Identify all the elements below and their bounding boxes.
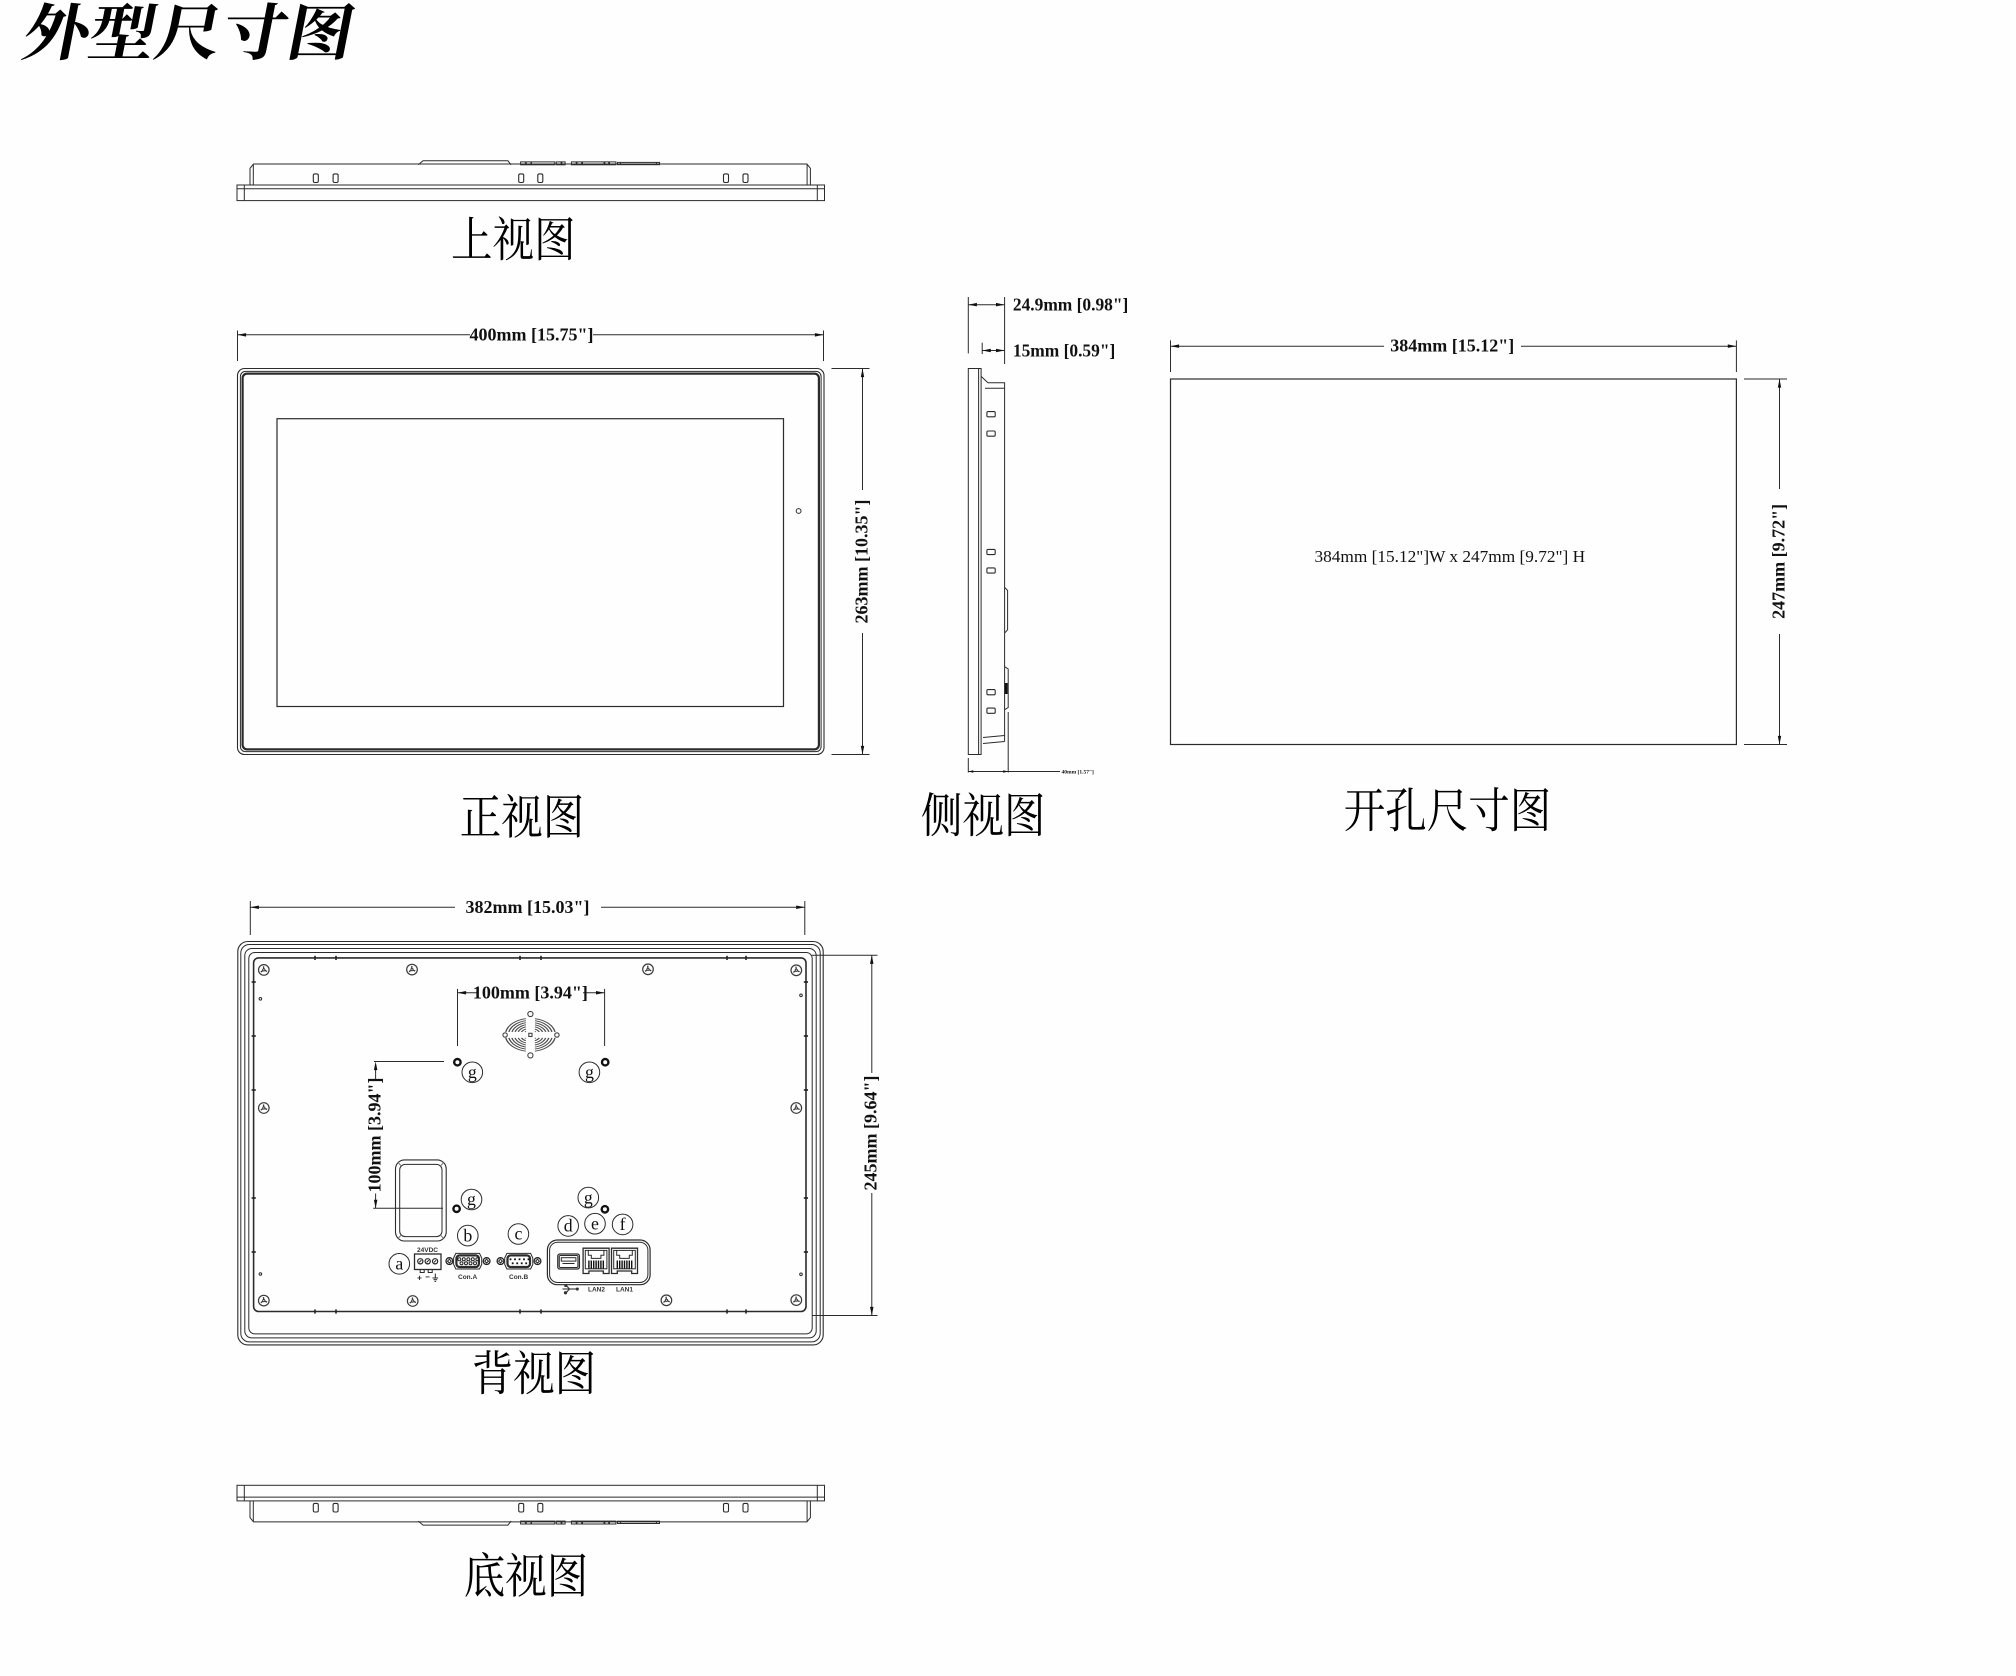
svg-text:LAN2: LAN2 [588, 1287, 605, 1294]
svg-text:+: + [417, 1274, 422, 1283]
svg-text:263mm [10.35"]: 263mm [10.35"] [851, 500, 871, 624]
svg-text:e: e [591, 1213, 599, 1233]
svg-text:100mm [3.94"]: 100mm [3.94"] [473, 982, 588, 1002]
svg-text:382mm [15.03"]: 382mm [15.03"] [466, 897, 590, 917]
svg-text:247mm [9.72"]: 247mm [9.72"] [1768, 504, 1788, 619]
svg-text:f: f [620, 1214, 626, 1234]
svg-text:−: − [425, 1273, 430, 1282]
svg-text:a: a [395, 1253, 403, 1273]
svg-text:384mm [15.12"]: 384mm [15.12"] [1390, 336, 1514, 356]
svg-text:LAN1: LAN1 [616, 1287, 633, 1294]
svg-text:Con.A: Con.A [458, 1274, 477, 1281]
svg-text:c: c [514, 1224, 522, 1244]
svg-text:24VDC: 24VDC [417, 1247, 438, 1254]
svg-text:24.9mm [0.98"]: 24.9mm [0.98"] [1013, 295, 1128, 315]
svg-text:384mm [15.12"]W x 247mm [9.72": 384mm [15.12"]W x 247mm [9.72"] H [1315, 547, 1586, 566]
svg-text:245mm [9.64"]: 245mm [9.64"] [861, 1076, 881, 1191]
svg-text:g: g [584, 1187, 593, 1207]
svg-text:g: g [585, 1062, 594, 1082]
svg-text:b: b [463, 1225, 472, 1245]
svg-text:100mm [3.94"]: 100mm [3.94"] [364, 1078, 384, 1193]
svg-text:15mm [0.59"]: 15mm [0.59"] [1013, 341, 1115, 361]
svg-text:d: d [564, 1216, 573, 1236]
svg-text:400mm [15.75"]: 400mm [15.75"] [470, 324, 594, 344]
svg-text:g: g [468, 1062, 477, 1082]
svg-text:Con.B: Con.B [509, 1274, 528, 1281]
svg-text:g: g [467, 1189, 476, 1209]
svg-text:40mm [1.57"]: 40mm [1.57"] [1062, 770, 1095, 776]
